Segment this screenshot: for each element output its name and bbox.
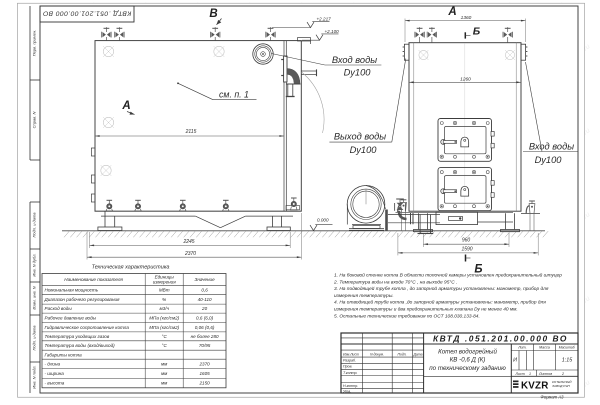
svg-text:Гидравлическое сопротивление к: Гидравлическое сопротивление котла [45,325,130,330]
svg-text:МПа (кгс/см2): МПа (кгс/см2) [149,315,179,320]
svg-text:Н.контр.: Н.контр. [343,384,358,388]
svg-text:Изм.Лист: Изм.Лист [343,352,359,356]
svg-text:2. Температура воды на входе: 2. Температура воды на входе 70°С , на в… [333,279,457,285]
svg-text:+2.217: +2.217 [317,17,332,22]
svg-text:Dy100: Dy100 [350,145,378,155]
svg-text:Листов: Листов [538,372,552,376]
svg-text:1:15: 1:15 [562,358,573,364]
svg-text:Масштаб: Масштаб [559,345,575,349]
svg-text:КВТД .051.201.00.000 ВО: КВТД .051.201.00.000 ВО [42,9,131,16]
svg-text:0,6: 0,6 [201,288,208,293]
svg-text:2: 2 [561,372,564,376]
svg-text:Масса: Масса [539,345,550,349]
svg-text:N докум.: N докум. [370,352,384,356]
svg-text:Вход воды: Вход воды [332,55,377,65]
svg-text:Пров.: Пров. [343,365,352,369]
svg-text:Котел водогрейный: Котел водогрейный [438,348,497,355]
svg-text:0.000: 0.000 [317,218,329,223]
svg-text:Техническая характеристика: Техническая характеристика [92,264,170,270]
svg-text:Dy100: Dy100 [535,155,563,165]
svg-text:Габариты котла: Габариты котла [45,352,83,357]
svg-text:3. На подводящей трубе котла: 3. На подводящей трубе котла , до запорн… [334,285,549,292]
svg-text:Выход воды: Выход воды [334,132,386,142]
svg-text:Подп.: Подп. [397,352,406,356]
svg-text:МПа (кгс/см2): МПа (кгс/см2) [149,325,179,330]
svg-text:40-110: 40-110 [198,297,212,302]
svg-text:- высота: - высота [45,381,65,386]
svg-text:- длина: - длина [45,362,61,367]
svg-text:А: А [121,100,130,112]
svg-text:Лист: Лист [515,372,525,376]
svg-text:Т.контр.: Т.контр. [343,371,358,375]
svg-text:KVZR: KVZR [521,380,548,391]
svg-text:Температура воды (вход/выход): Температура воды (вход/выход) [45,343,116,348]
svg-text:Б: Б [473,25,481,37]
svg-text:Подп. и дата: Подп. и дата [31,212,36,238]
svg-text:КОТЕЛЬНЫЙ: КОТЕЛЬНЫЙ [552,380,572,384]
svg-text:по техническому заданию: по техническому заданию [429,365,506,372]
svg-text:А: А [447,6,456,18]
svg-text:1: 1 [529,372,531,376]
svg-text:1. На боковой стенке котла В: 1. На боковой стенке котла В области топ… [334,272,562,279]
svg-text:КВТД .051.201.00.000 ВО: КВТД .051.201.00.000 ВО [433,333,568,343]
svg-text:°С: °С [162,334,168,339]
svg-text:МВт: МВт [159,288,170,293]
svg-text:Взам. инв. N: Взам. инв. N [31,286,36,309]
svg-text:1590: 1590 [461,246,472,252]
svg-text:°С: °С [162,343,168,348]
svg-text:5. Остальные технические треб: 5. Остальные технические требования по О… [334,313,480,319]
svg-text:Лит.: Лит. [517,345,526,349]
svg-text:70/95: 70/95 [199,343,211,348]
svg-text:Значение: Значение [195,277,216,282]
svg-text:960: 960 [462,238,471,244]
svg-text:измерения температуры.: измерения температуры. [334,294,394,299]
svg-text:+2.100: +2.100 [325,29,340,34]
svg-text:2150: 2150 [198,381,210,386]
svg-text:Формат А3: Формат А3 [541,394,565,399]
svg-text:измерения температуры и два пр: измерения температуры и два предохраните… [334,307,518,313]
svg-text:Номинальная мощность: Номинальная мощность [45,288,99,293]
svg-text:Наименование показателя: Наименование показателя [64,277,123,282]
svg-text:0,06 (0,6): 0,06 (0,6) [195,325,215,330]
svg-text:Утв.: Утв. [343,389,351,393]
svg-text:Dy100: Dy100 [344,68,372,78]
svg-text:Температура уходящих газов: Температура уходящих газов [45,334,110,339]
svg-text:В: В [209,8,217,20]
svg-text:4. На отводящей трубе котла ,: 4. На отводящей трубе котла ,до запорной… [334,299,546,306]
svg-text:мм: мм [161,381,168,386]
svg-text:Справ. N: Справ. N [31,112,36,129]
svg-text:Рабочее давление воды: Рабочее давление воды [45,315,97,320]
svg-text:Вход воды: Вход воды [529,142,574,152]
svg-text:см. п. 1: см. п. 1 [219,89,249,99]
svg-text:1605: 1605 [199,371,210,376]
svg-text:1360: 1360 [461,15,472,21]
svg-text:измерения: измерения [153,280,177,285]
svg-text:Перв. примен.: Перв. примен. [31,30,36,57]
svg-text:Диапазон рабочего регулировани: Диапазон рабочего регулирования [44,297,121,302]
svg-text:Подп. и дата: Подп. и дата [31,325,36,351]
svg-text:Инв. N подл.: Инв. N подл. [31,365,36,388]
svg-text:мм: мм [161,371,168,376]
svg-text:2245: 2245 [182,239,194,245]
svg-text:0,6 (6,0): 0,6 (6,0) [196,315,214,320]
svg-text:%: % [162,297,166,302]
svg-text:2115: 2115 [185,129,197,135]
svg-text:20: 20 [201,306,208,311]
svg-text:2370: 2370 [198,362,210,367]
svg-text:Расход воды: Расход воды [45,306,73,311]
svg-text:2370: 2370 [184,251,196,257]
svg-text:И: И [513,358,517,364]
svg-text:Разраб.: Разраб. [343,359,356,363]
svg-text:м3/ч: м3/ч [160,306,170,311]
svg-text:не более 280: не более 280 [191,334,219,339]
svg-text:Дата: Дата [413,352,423,356]
svg-text:- ширина: - ширина [45,371,65,376]
svg-text:мм: мм [161,362,168,367]
svg-text:Инв. N дубл.: Инв. N дубл. [31,253,36,276]
svg-text:ЗАВОД РЭП: ЗАВОД РЭП [552,384,571,388]
svg-text:КВ -0,6 Д (К): КВ -0,6 Д (К) [450,357,486,364]
svg-text:1260: 1260 [460,76,471,82]
